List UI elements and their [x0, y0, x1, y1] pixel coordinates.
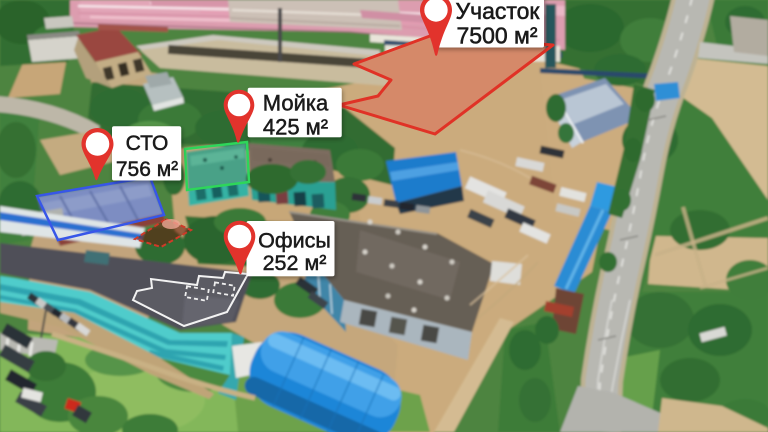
svg-text:Участок: Участок [455, 0, 540, 24]
svg-text:СТО: СТО [126, 132, 169, 155]
svg-text:425 м²: 425 м² [263, 115, 328, 140]
svg-text:756 м²: 756 м² [116, 158, 178, 181]
svg-text:Офисы: Офисы [258, 229, 331, 253]
svg-text:7500 м²: 7500 м² [456, 23, 537, 49]
svg-text:252 м²: 252 м² [263, 251, 327, 275]
svg-text:Мойка: Мойка [263, 91, 329, 116]
